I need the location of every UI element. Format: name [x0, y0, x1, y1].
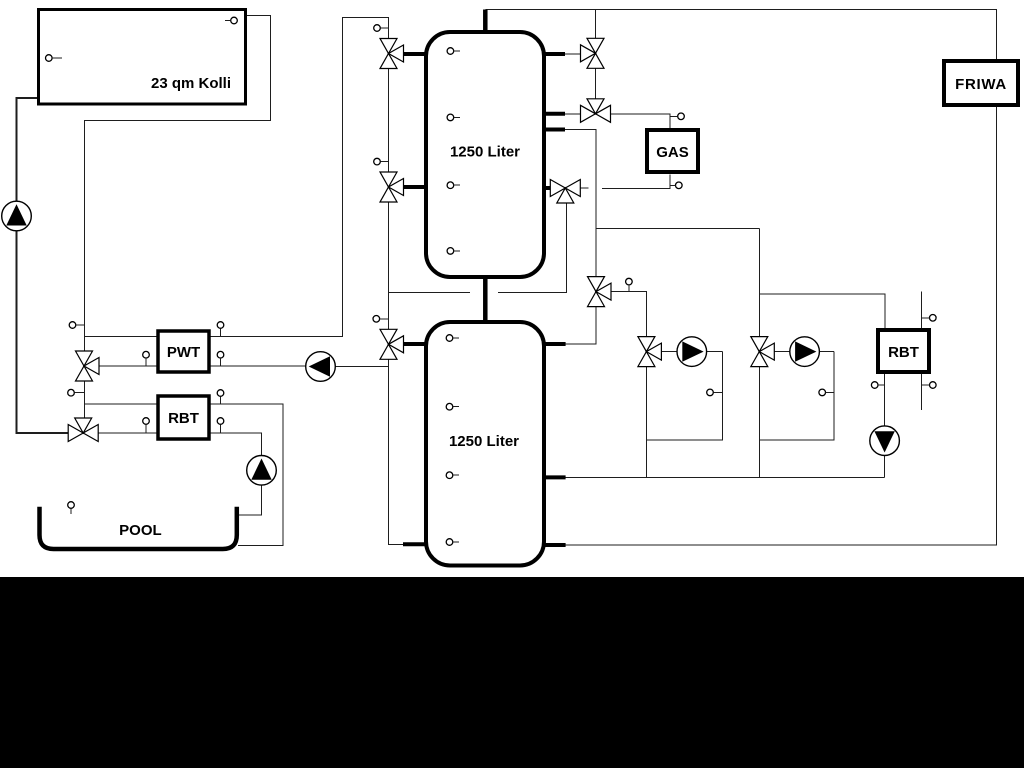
svg-text:1250 Liter: 1250 Liter: [450, 144, 520, 161]
svg-text:RBT: RBT: [168, 410, 199, 427]
svg-text:23 qm Kolli: 23 qm Kolli: [151, 75, 231, 92]
svg-text:FRIWA: FRIWA: [955, 76, 1007, 93]
svg-text:1250 Liter: 1250 Liter: [449, 433, 519, 450]
svg-text:GAS: GAS: [656, 144, 689, 161]
svg-text:POOL: POOL: [119, 522, 162, 539]
svg-text:PWT: PWT: [167, 344, 200, 361]
svg-text:RBT: RBT: [888, 344, 919, 361]
